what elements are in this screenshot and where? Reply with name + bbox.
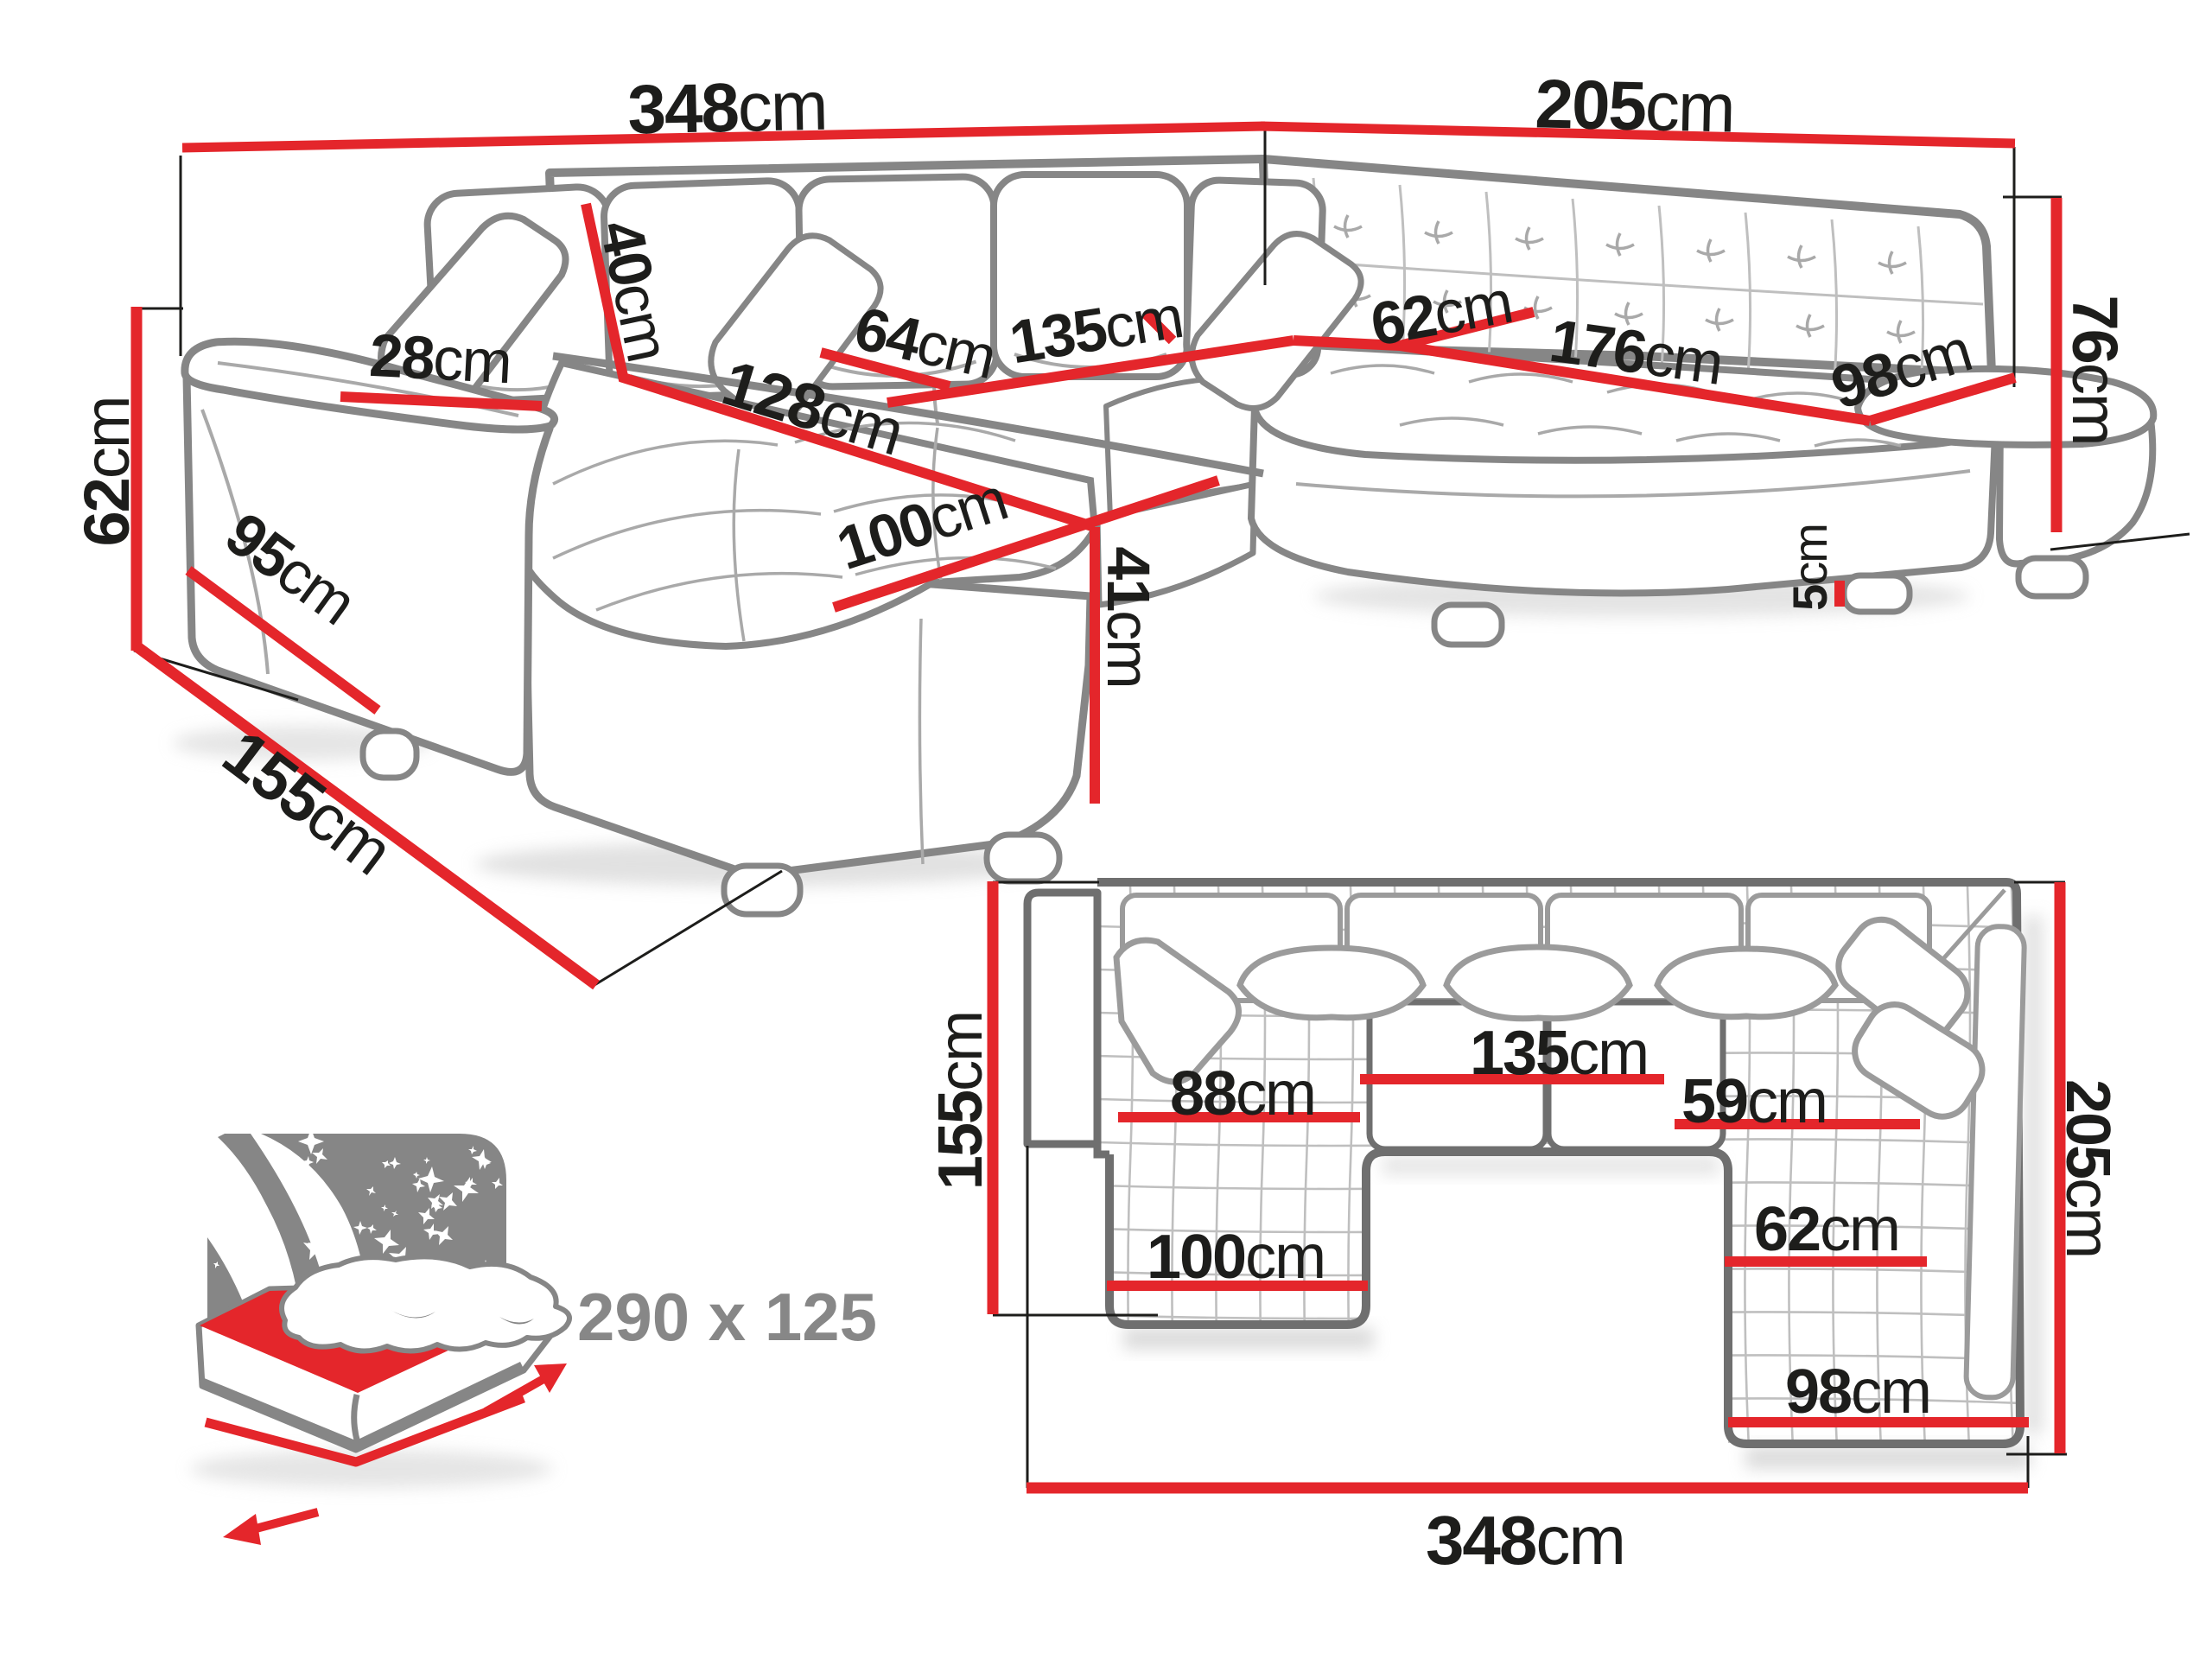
svg-text:100cm: 100cm — [1147, 1223, 1325, 1292]
svg-text:98cm: 98cm — [1785, 1357, 1930, 1427]
svg-text:348cm: 348cm — [626, 67, 827, 149]
svg-text:28cm: 28cm — [368, 321, 512, 396]
svg-text:348cm: 348cm — [1426, 1502, 1624, 1579]
svg-text:59cm: 59cm — [1681, 1067, 1827, 1136]
svg-text:76cm: 76cm — [2059, 296, 2131, 445]
svg-text:135cm: 135cm — [1470, 1019, 1648, 1088]
svg-text:62cm: 62cm — [71, 397, 143, 547]
svg-text:205cm: 205cm — [2053, 1079, 2122, 1257]
svg-text:62cm: 62cm — [1754, 1195, 1899, 1264]
svg-text:205cm: 205cm — [1535, 65, 1735, 146]
svg-text:88cm: 88cm — [1170, 1059, 1315, 1128]
svg-text:5cm: 5cm — [1783, 524, 1837, 611]
svg-text:155cm: 155cm — [926, 1012, 995, 1190]
svg-text:41cm: 41cm — [1095, 546, 1162, 687]
svg-text:290 x 125: 290 x 125 — [577, 1279, 877, 1355]
